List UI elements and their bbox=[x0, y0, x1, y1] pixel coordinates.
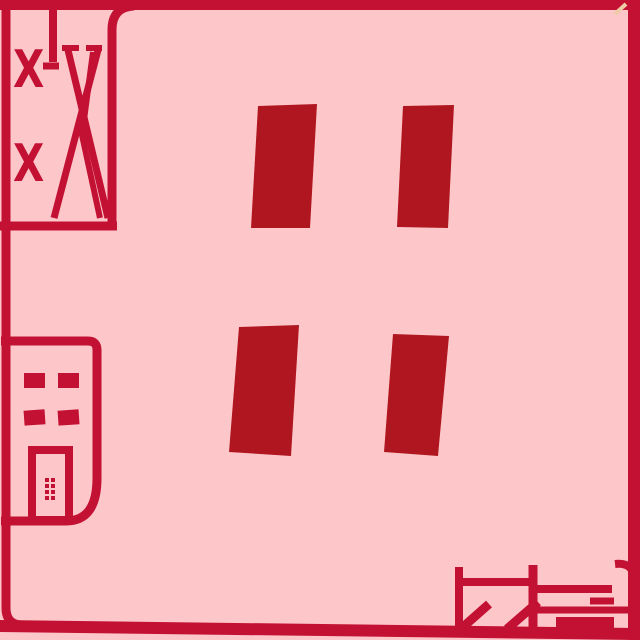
quote-bars-icon bbox=[229, 104, 454, 456]
window bbox=[24, 373, 45, 388]
red-bar-top-right bbox=[397, 105, 454, 228]
line-art-layer: X X bbox=[0, 0, 640, 640]
frame-right-edge bbox=[628, 0, 640, 640]
hook-curl-stroke bbox=[615, 564, 634, 580]
red-bar-top-left bbox=[251, 104, 317, 228]
red-bar-bottom-right bbox=[384, 334, 449, 456]
signature-glyphs-icon bbox=[455, 564, 634, 634]
crossed-strokes-panel: X X bbox=[0, 6, 134, 226]
red-bar-bottom-left bbox=[229, 325, 299, 456]
window bbox=[24, 409, 46, 425]
building-icon bbox=[1, 341, 97, 521]
window bbox=[58, 373, 79, 388]
door bbox=[32, 450, 69, 520]
door-handle-dots bbox=[45, 478, 55, 500]
artwork-canvas: X X bbox=[0, 0, 640, 640]
crossed-strokes-icon bbox=[54, 48, 108, 218]
rounded-border-frame bbox=[0, 0, 640, 640]
window bbox=[58, 409, 80, 425]
x-mark-top: X bbox=[13, 39, 44, 99]
frame-bottom-edge bbox=[0, 620, 640, 640]
panel-right-edge-hook bbox=[112, 6, 134, 222]
frame-top-edge bbox=[0, 0, 640, 10]
x-mark-bottom: X bbox=[13, 133, 44, 193]
